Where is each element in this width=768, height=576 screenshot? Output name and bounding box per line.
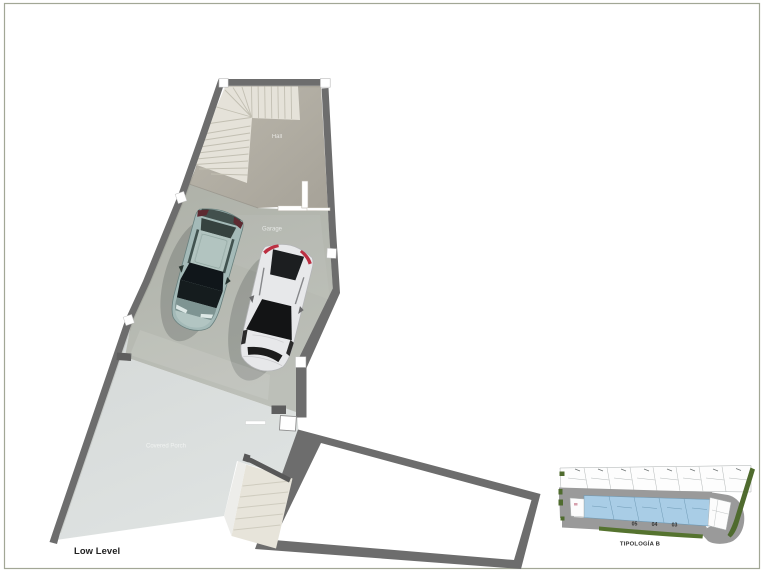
svg-text:Low Level: Low Level	[74, 545, 120, 556]
svg-text:Hall: Hall	[272, 134, 282, 140]
svg-text:05: 05	[632, 522, 638, 528]
svg-text:Covered Porch: Covered Porch	[146, 444, 186, 450]
svg-text:03: 03	[672, 523, 678, 529]
svg-text:TIPOLOGÍA B: TIPOLOGÍA B	[620, 540, 660, 548]
svg-text:Garage: Garage	[262, 227, 283, 233]
svg-text:04: 04	[652, 522, 658, 528]
